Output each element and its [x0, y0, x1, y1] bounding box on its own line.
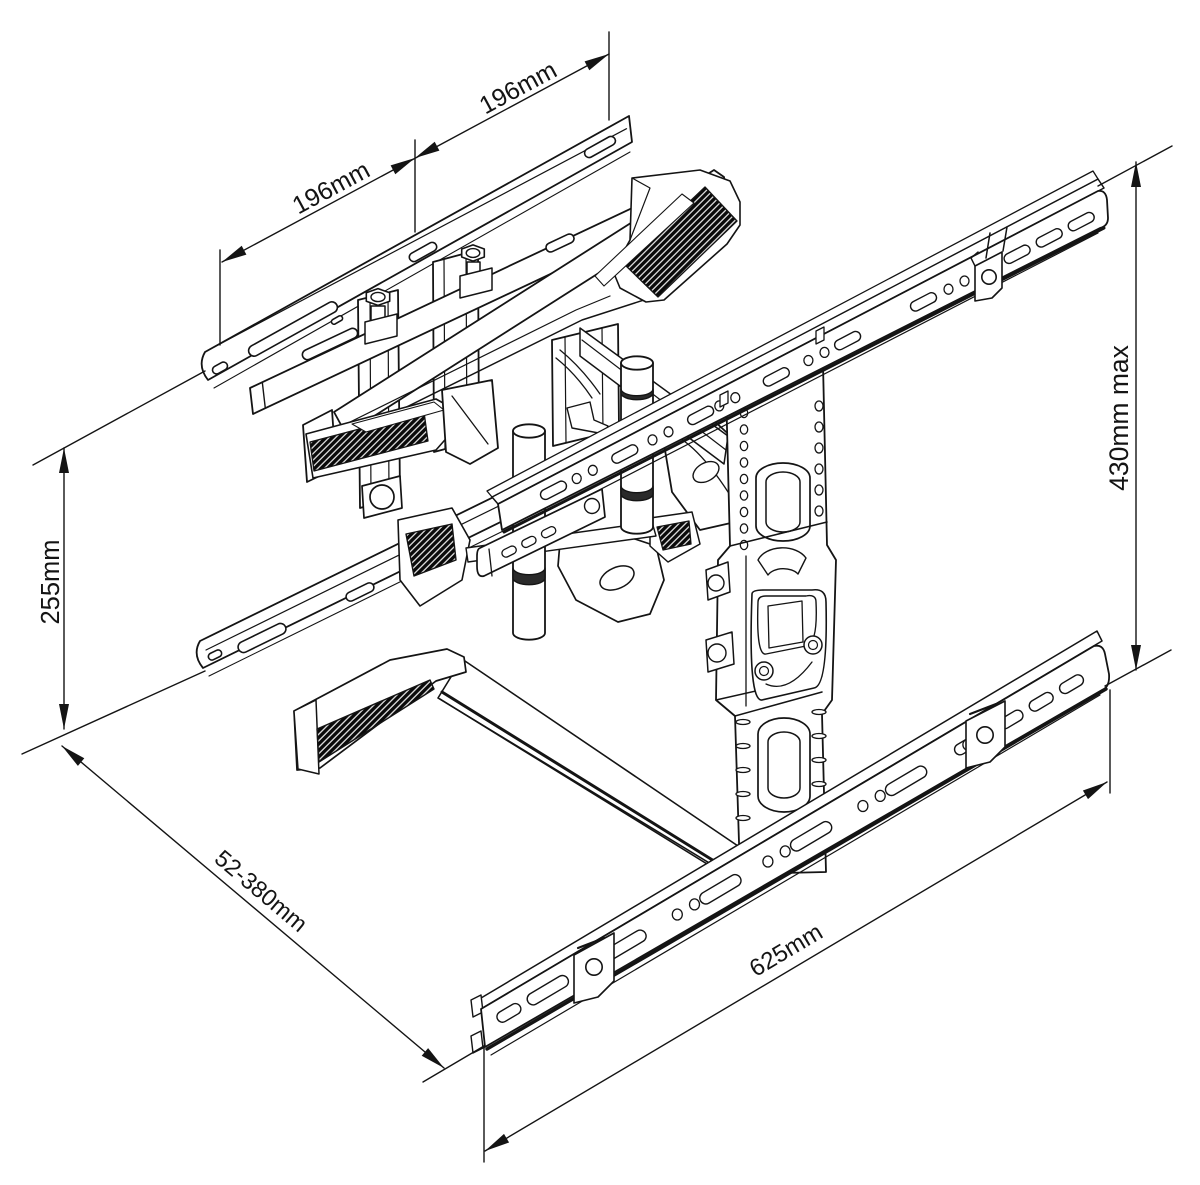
svg-text:430mm max: 430mm max: [1104, 345, 1134, 491]
svg-text:255mm: 255mm: [37, 539, 65, 624]
